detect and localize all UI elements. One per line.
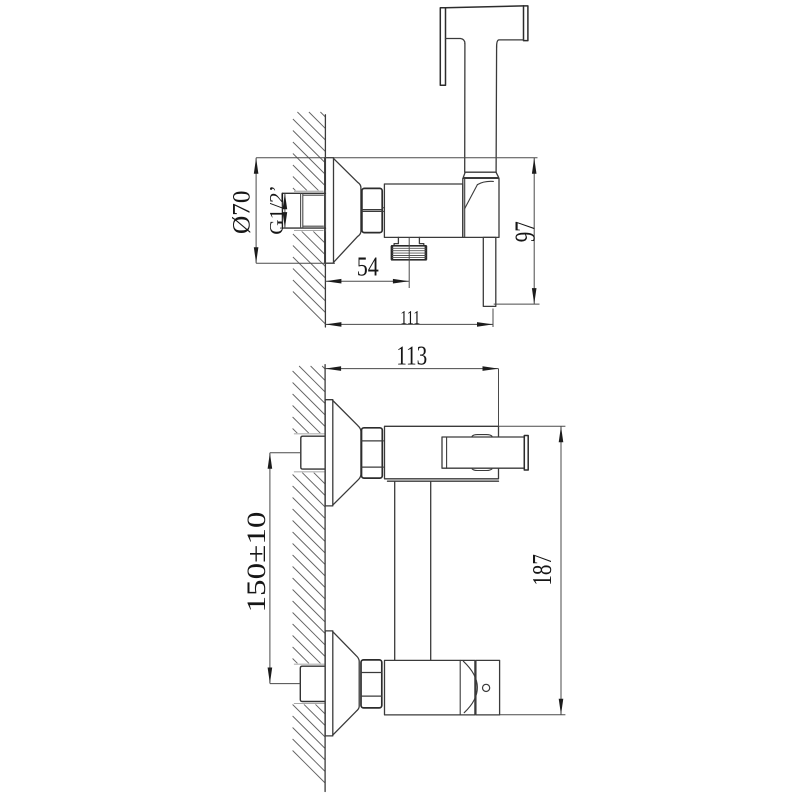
svg-text:187: 187 bbox=[527, 554, 557, 586]
svg-text:54: 54 bbox=[357, 252, 379, 282]
svg-text:G1/2’: G1/2’ bbox=[266, 185, 288, 235]
svg-text:113: 113 bbox=[396, 340, 427, 370]
svg-text:111: 111 bbox=[400, 307, 420, 329]
svg-text:Ø70: Ø70 bbox=[226, 191, 255, 235]
svg-text:150±10: 150±10 bbox=[242, 512, 271, 613]
svg-text:97: 97 bbox=[510, 221, 542, 242]
